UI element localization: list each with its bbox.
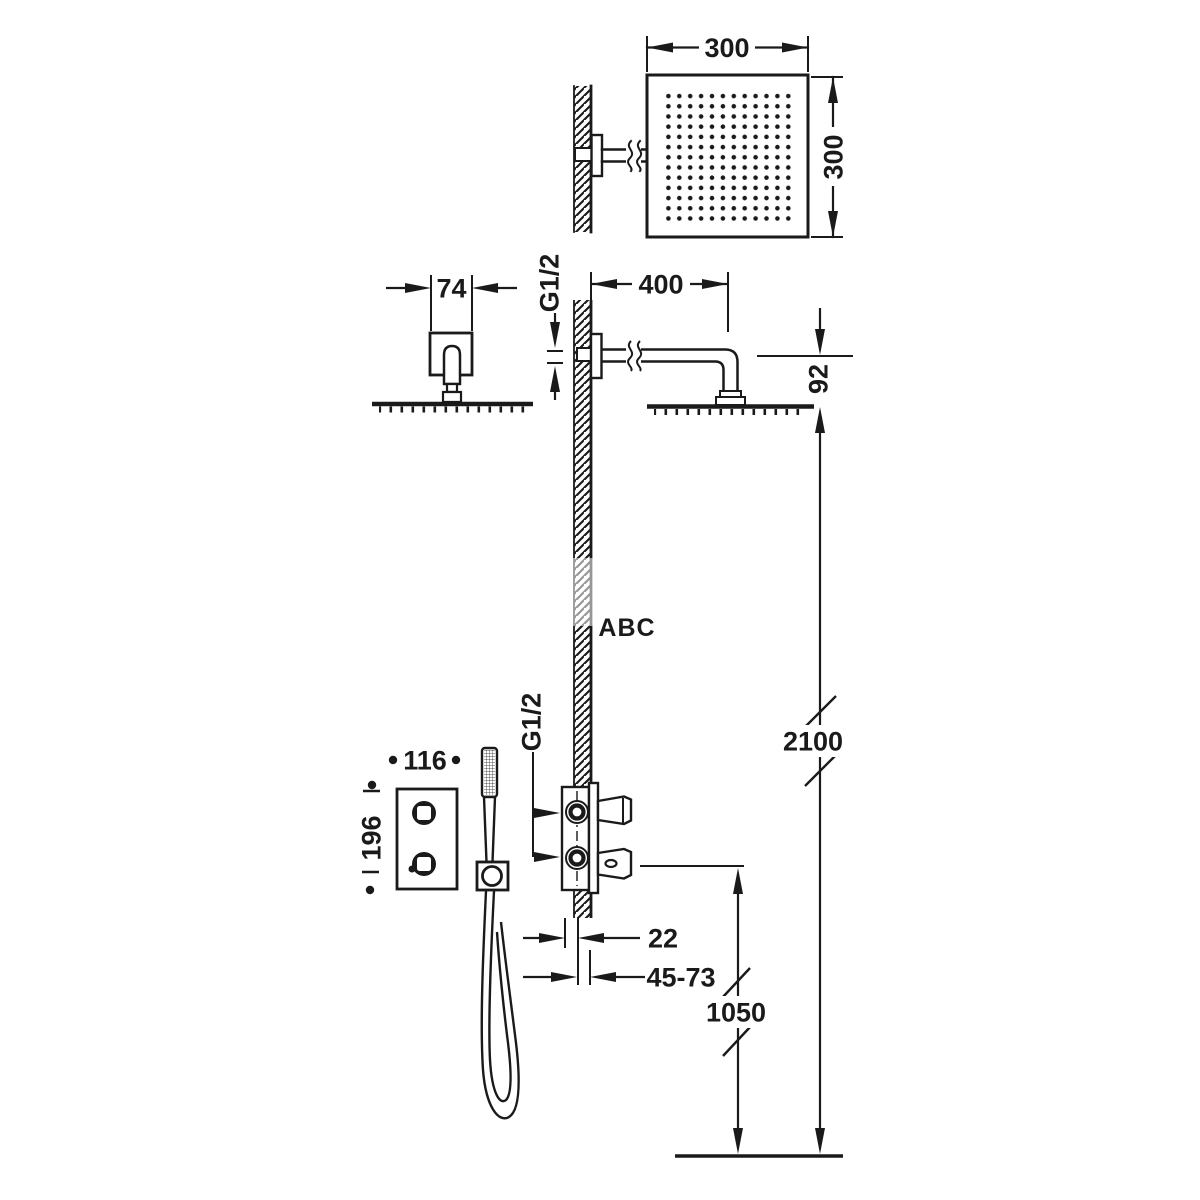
dim-rough-in-label: 45-73 <box>646 962 715 992</box>
escutcheon-front-view: 74 <box>372 273 533 412</box>
dim-valve-height: 196 <box>356 781 386 894</box>
dim-head-depth-label: 300 <box>818 134 848 179</box>
dim-valve-width-label: 116 <box>403 745 447 775</box>
watermark-smudge <box>571 558 594 626</box>
dim-plate-depth-label: 22 <box>648 923 678 953</box>
dim-escutcheon-width-label: 74 <box>436 273 466 303</box>
arm-flange <box>592 135 603 176</box>
dim-head-offset-label: 92 <box>803 364 833 394</box>
overhead-shower-front-view: 300 300 <box>574 32 849 237</box>
shower-dimension-drawing: 300 300 74 <box>0 0 1200 1200</box>
dim-valve-height-label: 196 <box>356 815 386 860</box>
dim-rough-in-depth: 45-73 <box>523 950 716 992</box>
wall-pipe-stub <box>577 348 591 361</box>
arm-thread-label: G1/2 <box>534 254 564 313</box>
arm-end-connector <box>444 346 460 384</box>
height-dimensions: 92 2100 1050 <box>640 308 853 1156</box>
mixer-front-view: 116 196 <box>356 745 518 1118</box>
break-slash <box>722 968 750 998</box>
valve-handle-bottom <box>598 849 631 879</box>
valve-port-bottom <box>566 847 588 869</box>
valve-plate-side <box>589 783 598 893</box>
nozzle-ticks <box>654 409 804 415</box>
nozzle-dot-grid <box>663 91 794 223</box>
dim-valve-width: 116 <box>389 745 460 775</box>
hand-shower <box>477 748 519 1118</box>
dim-head-floor-label: 2100 <box>783 726 843 756</box>
mixer-knob-top <box>412 801 436 825</box>
valve-port-top <box>566 801 588 823</box>
dim-head-width: 300 <box>647 32 808 71</box>
valve-handle-top <box>598 797 631 825</box>
dim-head-depth: 300 <box>812 77 849 237</box>
dim-head-width-label: 300 <box>704 33 749 63</box>
nozzle-ticks <box>379 407 527 413</box>
dim-arm-length-label: 400 <box>638 269 683 299</box>
hand-shower-texture <box>484 750 495 795</box>
hand-shower-handle <box>484 797 495 862</box>
watermark-text: ABC <box>598 614 655 642</box>
dim-escutcheon-width: 74 <box>386 273 517 331</box>
dim-arm-length: 400 <box>591 269 728 332</box>
technical-diagram: 300 300 74 <box>0 0 1200 1200</box>
mixer-side-view: G1/2 22 <box>516 693 715 993</box>
shower-hose <box>482 891 519 1118</box>
valve-thread-label: G1/2 <box>516 693 546 752</box>
arm-flange <box>591 334 602 378</box>
wall-pipe-stub <box>575 148 592 161</box>
holder-ball <box>483 867 502 886</box>
dim-valve-floor-label: 1050 <box>706 997 766 1027</box>
shower-arm <box>602 350 738 392</box>
